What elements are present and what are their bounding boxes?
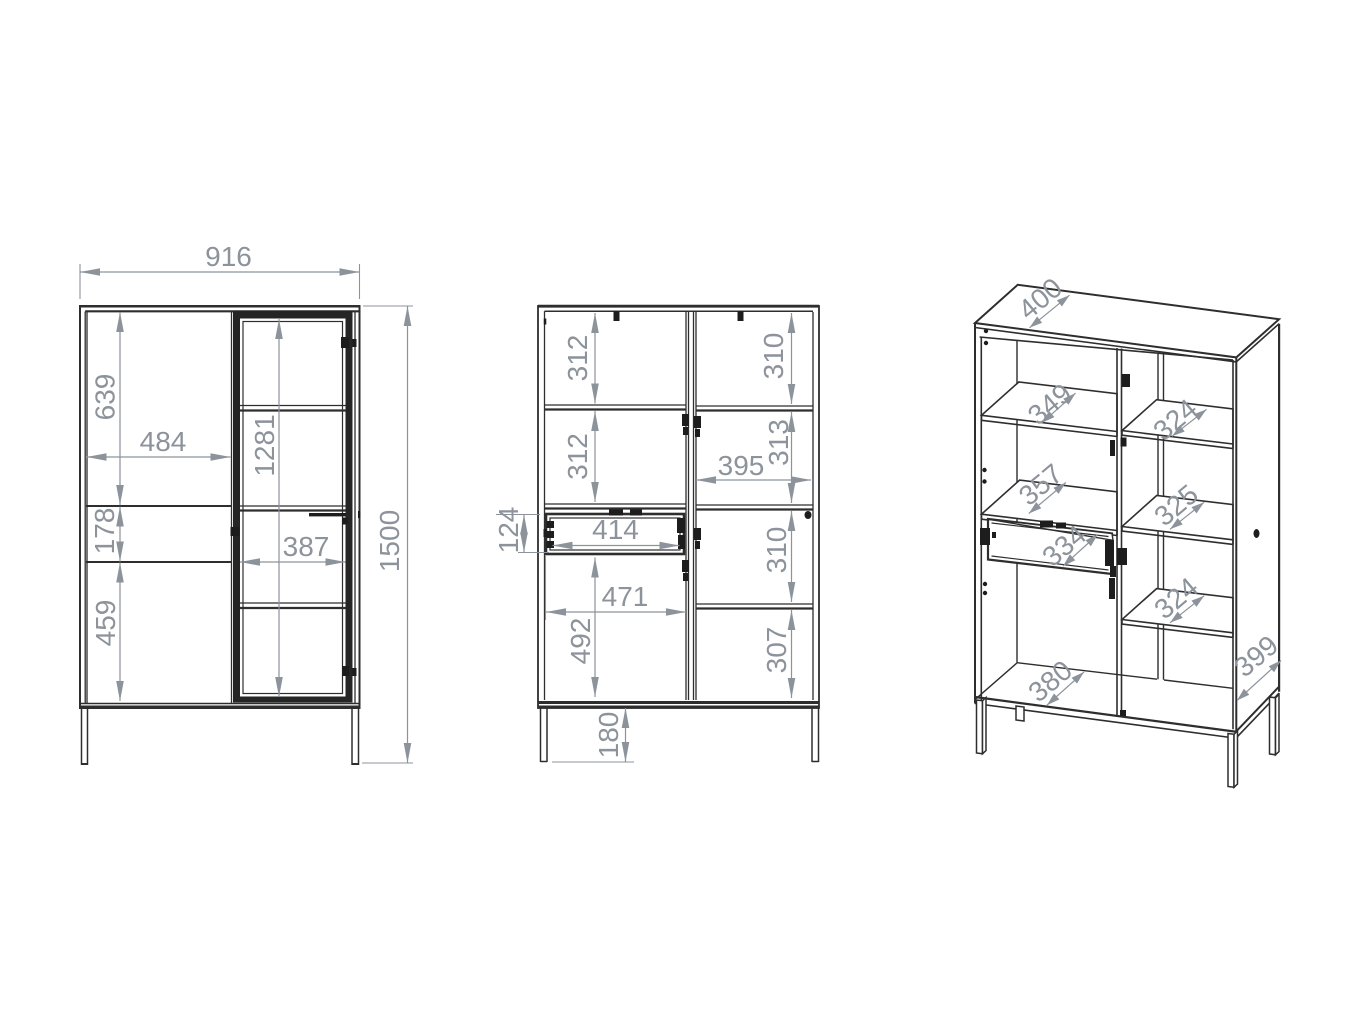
svg-text:180: 180 — [593, 712, 624, 759]
svg-text:395: 395 — [718, 450, 765, 481]
svg-text:380: 380 — [1022, 654, 1078, 708]
svg-text:312: 312 — [562, 433, 593, 480]
svg-text:916: 916 — [205, 241, 252, 272]
svg-text:312: 312 — [562, 335, 593, 382]
svg-text:387: 387 — [283, 531, 330, 562]
svg-text:310: 310 — [758, 333, 789, 380]
svg-text:1281: 1281 — [249, 414, 280, 476]
svg-text:414: 414 — [592, 514, 639, 545]
svg-text:313: 313 — [763, 419, 794, 466]
svg-text:471: 471 — [602, 581, 649, 612]
svg-text:307: 307 — [761, 627, 792, 674]
svg-text:1500: 1500 — [374, 510, 405, 572]
svg-text:492: 492 — [565, 618, 596, 665]
svg-text:310: 310 — [761, 527, 792, 574]
svg-text:484: 484 — [140, 426, 187, 457]
svg-text:639: 639 — [89, 374, 120, 421]
svg-text:124: 124 — [493, 507, 524, 554]
svg-text:178: 178 — [89, 508, 120, 555]
svg-text:459: 459 — [90, 600, 121, 647]
